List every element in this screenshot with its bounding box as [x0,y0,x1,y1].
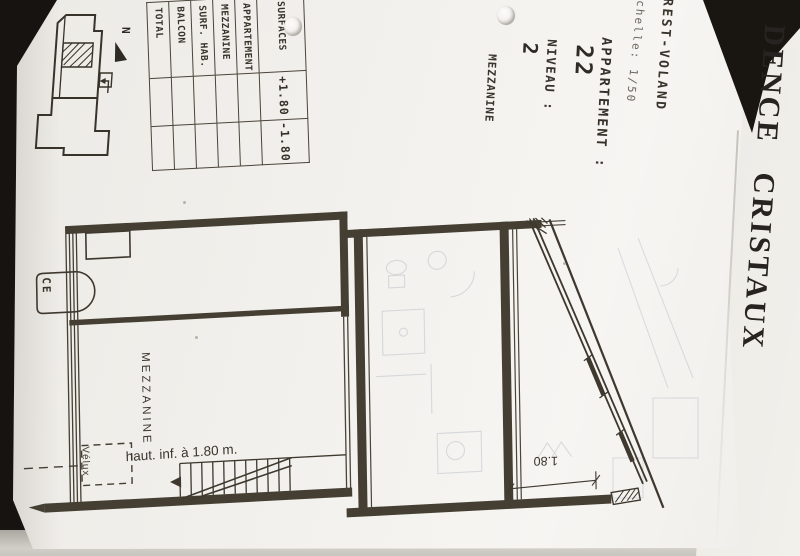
interior-wall [69,305,349,325]
entry-arrow-symbol [99,73,112,93]
empty-cell [238,73,262,122]
empty-cell [173,125,197,170]
dust-speck [563,262,566,265]
roof-slope-lines [529,212,663,515]
apartment-location-hatch [62,43,94,67]
empty-cell [239,121,263,166]
stair-direction-arrow [170,476,181,488]
ghost-bleedthrough-fixtures [374,244,572,476]
punch-hole-right [497,6,515,25]
velux-skylight [24,443,133,489]
empty-cell [217,122,241,167]
north-arrow: N [114,27,132,62]
scanned-floor-plan-photo: DENCE CRISTAUX REST-VOLAND chelle: 1/50 … [0,0,800,556]
row-label-mezzanine: MEZZANINE [218,4,231,75]
key-plan: N [14,2,161,176]
dimension-label: 1.80 [534,454,559,468]
mezzanine-room-label: MEZZANINE [139,352,153,446]
punch-hole-left [284,17,302,36]
empty-cell [194,76,218,125]
mezzanine-floor-plan: CE MEZZANINE Vélux haut. inf. à 1.80 m. [10,199,365,527]
outer-walls [342,216,612,517]
velux-label: Vélux [80,446,92,477]
level-number: 2 [518,41,543,54]
dimension-line [506,471,600,498]
dust-speck [183,201,186,204]
north-letter: N [119,27,132,34]
header-minus-180: -1.80 [277,121,292,161]
mezzanine-plan-drawing [10,199,365,527]
dust-speck [195,336,198,339]
table-header-surfaces: SURFACES [275,1,288,72]
row-label-surf-hab: SURF. HAB. [196,5,209,76]
adjacent-level-plan: 1.80 [334,201,674,531]
empty-cell [216,74,240,123]
empty-cell [195,124,219,169]
row-label-balcon: BALCON [174,6,187,77]
empty-cell [172,77,196,126]
key-plan-drawing: N [14,2,161,172]
building-outline [35,15,117,155]
water-heater-label: CE [40,277,53,295]
level-label: NIVEAU : [541,39,560,112]
closet-niche [86,231,130,259]
row-label-appartement: APPARTEMENT [240,3,253,74]
north-triangle [114,42,128,62]
adjacent-plan-drawing [334,201,674,531]
empty-cell [152,126,176,171]
header-plus-180: +1.80 [276,75,291,115]
left-wall-lines [66,226,81,507]
